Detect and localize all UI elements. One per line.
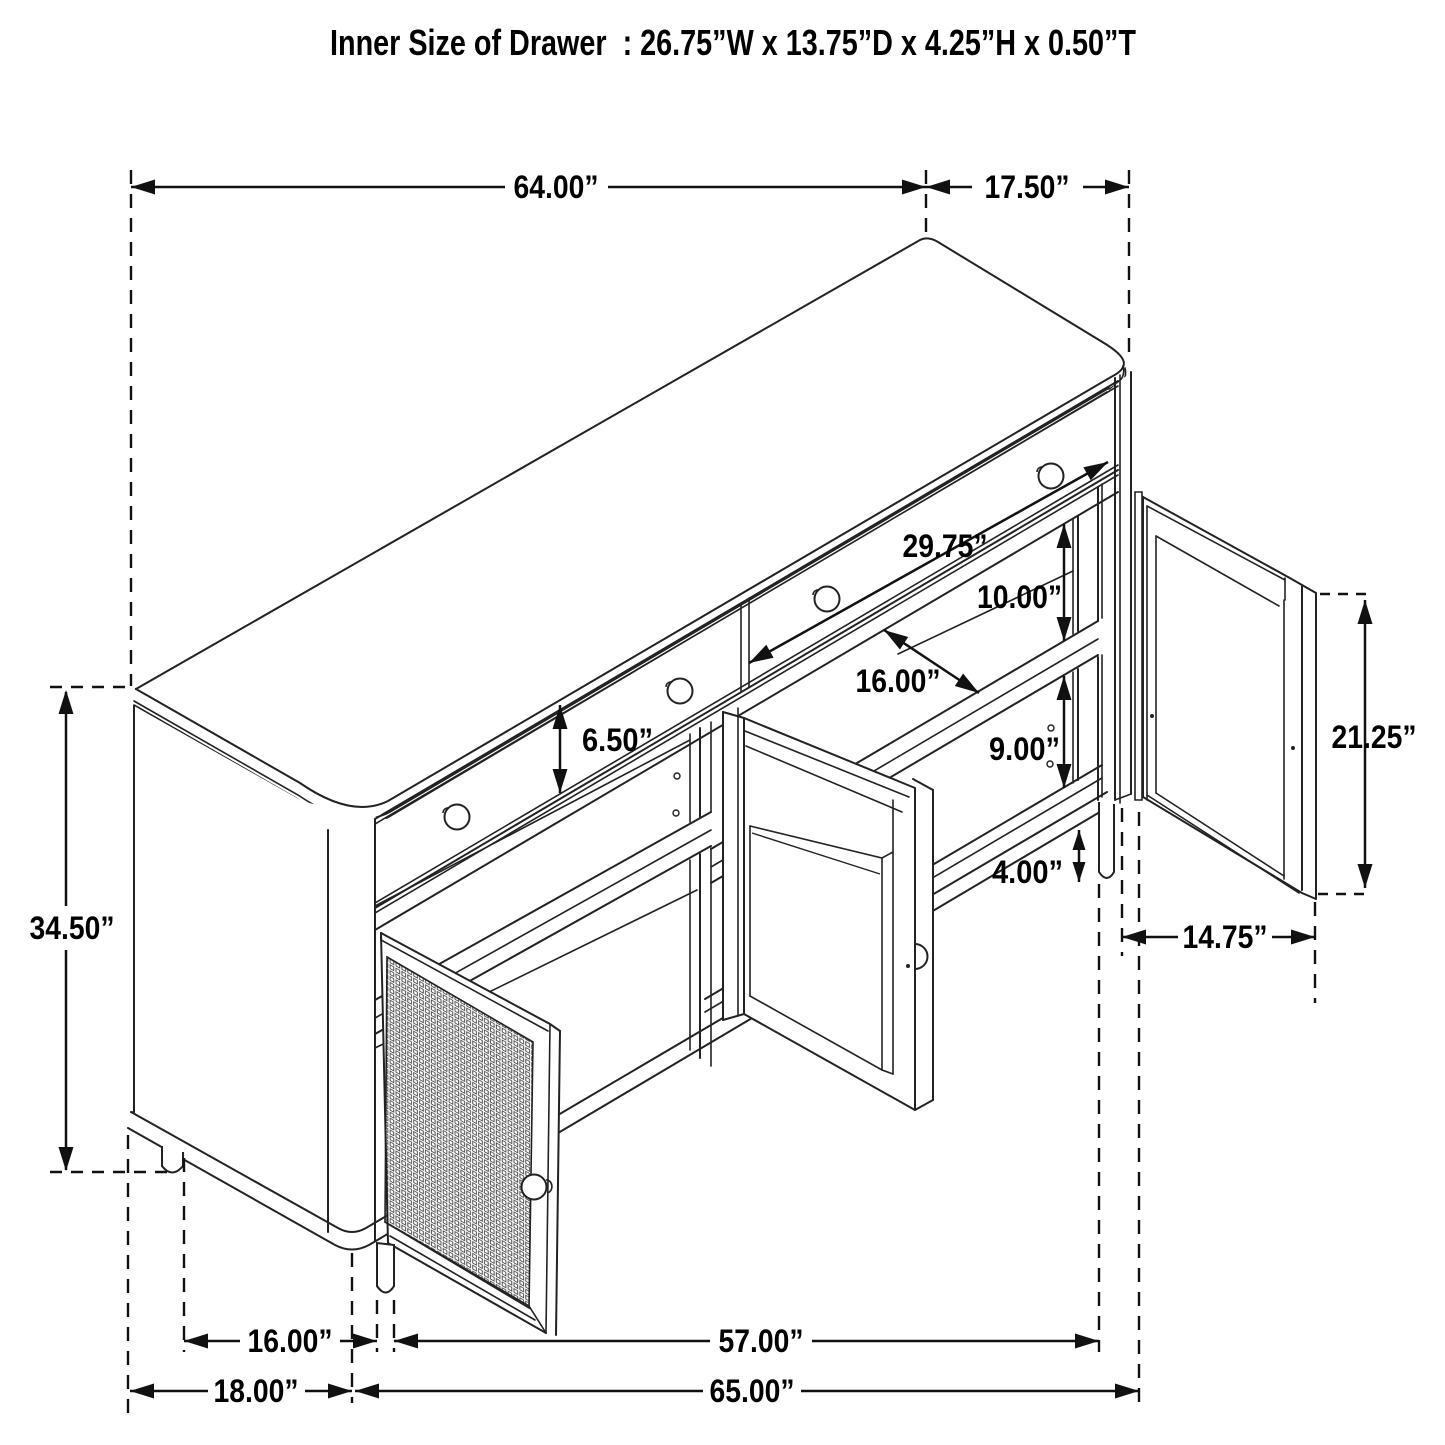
svg-text:65.00”: 65.00”: [710, 1373, 795, 1409]
svg-text:17.50”: 17.50”: [985, 169, 1070, 205]
svg-text:34.50”: 34.50”: [30, 910, 115, 946]
svg-text:21.25”: 21.25”: [1332, 719, 1417, 755]
svg-text:64.00”: 64.00”: [514, 169, 599, 205]
svg-text:14.75”: 14.75”: [1183, 919, 1268, 955]
svg-text:18.00”: 18.00”: [214, 1373, 299, 1409]
svg-text:10.00”: 10.00”: [977, 579, 1062, 615]
svg-text:29.75”: 29.75”: [903, 528, 988, 564]
svg-text:57.00”: 57.00”: [719, 1323, 804, 1359]
svg-text:9.00”: 9.00”: [989, 731, 1060, 767]
svg-text:4.00”: 4.00”: [992, 854, 1063, 890]
svg-text:16.00”: 16.00”: [248, 1323, 333, 1359]
svg-text:Inner Size of Drawer : 26.75”: Inner Size of Drawer : 26.75”W x 13.75”D…: [330, 22, 1136, 63]
svg-text:6.50”: 6.50”: [582, 722, 653, 758]
svg-text:16.00”: 16.00”: [856, 663, 941, 699]
